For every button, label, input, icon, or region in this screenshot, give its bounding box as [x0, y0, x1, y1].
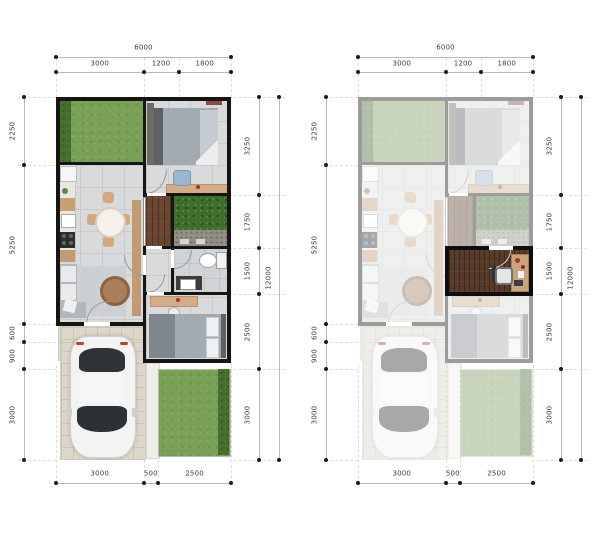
sliding-door	[143, 197, 146, 246]
car	[372, 336, 436, 456]
toilet-tank	[216, 252, 227, 269]
stove-burner	[62, 234, 66, 238]
stove-burner	[69, 234, 73, 238]
wall-vertical-main-upper	[445, 97, 448, 197]
stepping-stone	[196, 239, 205, 244]
dining-chair	[405, 192, 416, 203]
wall-vertical-secondary	[171, 195, 174, 294]
desk-flowers	[521, 265, 525, 269]
car-taillight	[120, 342, 128, 345]
kitchen-cutting-board	[362, 198, 377, 211]
bedroom2-vanity	[452, 296, 500, 307]
wood-deck	[146, 196, 171, 246]
car-roof	[381, 374, 427, 404]
desk-laptop	[514, 280, 523, 286]
kitchen-sink	[363, 214, 378, 228]
wall-garden-kitchen	[56, 162, 146, 165]
wall-bedroom2-bottom	[445, 359, 533, 363]
kitchen-plant	[62, 188, 68, 194]
sofa-cushion	[61, 266, 76, 282]
bedroom1-headboard	[456, 108, 465, 165]
car-rear-window	[381, 348, 427, 372]
toilet-bowl	[199, 253, 217, 268]
dining-table	[95, 207, 126, 238]
bedroom2-pillow	[206, 338, 219, 358]
vanity-flowers	[478, 298, 482, 302]
dining-table	[397, 207, 428, 238]
plan-canvas-left	[0, 0, 300, 538]
front-garden-hedge	[362, 101, 373, 162]
kitchen-plant	[364, 188, 370, 194]
fridge	[362, 166, 379, 182]
floor-plan-left: 6000300012001800225052506009003000325017…	[0, 0, 300, 538]
stove-burner	[62, 241, 66, 245]
car-mirror	[434, 408, 440, 417]
dining-chair	[103, 192, 114, 203]
car-roof	[79, 374, 125, 404]
stove-burner	[69, 241, 73, 245]
bedroom2-blanket	[451, 314, 477, 358]
side-garden-shrubs	[174, 196, 227, 230]
stove-burner	[364, 241, 368, 245]
bedroom1-blanket-fold	[498, 138, 520, 165]
bedroom2-pillow	[206, 317, 219, 337]
bedroom1-door-gap	[147, 193, 166, 196]
bedroom1-wardrobe	[449, 103, 456, 165]
bedroom2-pillow	[508, 317, 521, 337]
car-mirror	[66, 408, 72, 417]
wall-right	[227, 97, 231, 363]
vanity-flowers	[176, 298, 180, 302]
plan-interior	[0, 0, 300, 538]
front-garden	[362, 101, 445, 162]
bedroom1-headboard	[154, 108, 163, 165]
wall-porch-bedroom2	[143, 322, 146, 363]
hall-opening-gap	[146, 246, 162, 249]
bedroom2-blanket	[149, 314, 175, 358]
desk-flowers	[515, 258, 520, 263]
entry-door-gap	[84, 322, 110, 326]
kitchen-cabinet	[60, 250, 75, 262]
bedroom2-headboard	[221, 314, 226, 358]
car-windshield	[379, 406, 429, 432]
bedroom2-door-gap	[147, 292, 164, 295]
bedroom1-chair	[475, 170, 493, 186]
car-mirror	[132, 408, 138, 417]
desk-flowers	[196, 185, 200, 189]
stepping-stone	[180, 239, 189, 244]
fridge	[60, 166, 77, 182]
stepping-stone	[482, 239, 491, 244]
sofa-cushion	[363, 266, 378, 282]
floor-plan-figure: 6000300012001800225052506009003000325017…	[0, 0, 600, 538]
stove-burner	[364, 234, 368, 238]
entry-door-gap	[386, 322, 412, 326]
side-garden-shrubs	[476, 196, 529, 230]
desk-paper	[518, 271, 524, 278]
car-windshield	[77, 406, 127, 432]
kitchen-cabinet	[362, 250, 377, 262]
wall-vertical-main-upper	[143, 97, 146, 197]
back-garden-hedge	[520, 369, 531, 455]
highlighted-workspace-room	[445, 246, 533, 296]
sliding-door	[445, 197, 448, 246]
wood-deck	[448, 196, 473, 246]
desk-flowers	[498, 185, 502, 189]
front-garden-hedge	[60, 101, 71, 162]
bedroom1-wardrobe	[147, 103, 154, 165]
bedroom1-chair	[173, 170, 191, 186]
bedroom2-pillow	[508, 338, 521, 358]
floor-plan-right: 6000300012001800225052506009003000325017…	[302, 0, 600, 538]
car-rear-window	[79, 348, 125, 372]
car	[70, 336, 134, 456]
stepping-stone	[498, 239, 507, 244]
stove-burner	[371, 241, 375, 245]
car-mirror	[368, 408, 374, 417]
back-garden-hedge	[218, 369, 229, 455]
hall-living-door-gap	[143, 255, 146, 275]
wall-left	[358, 97, 362, 326]
wall-left	[56, 97, 60, 326]
wall-right	[529, 97, 533, 363]
bathroom-door-gap	[171, 250, 174, 268]
kitchen-sink	[61, 214, 76, 228]
front-garden	[60, 101, 143, 162]
car-taillight	[76, 342, 84, 345]
bedroom2-vanity	[150, 296, 198, 307]
bedroom2-headboard	[523, 314, 528, 358]
stove-burner	[371, 234, 375, 238]
car-taillight	[422, 342, 430, 345]
sofa-cushion	[363, 284, 378, 300]
wall-porch-bedroom2	[445, 322, 448, 363]
kitchen-cutting-board	[60, 198, 75, 211]
office-chair-seat	[495, 267, 513, 285]
bedroom1-blanket-fold	[196, 138, 218, 165]
wall-garden-kitchen	[358, 162, 448, 165]
bedroom1-door-gap	[449, 193, 468, 196]
car-taillight	[378, 342, 386, 345]
bathroom-sink	[180, 279, 196, 290]
wall-bedroom2-bottom	[143, 359, 231, 363]
sofa-cushion	[61, 284, 76, 300]
